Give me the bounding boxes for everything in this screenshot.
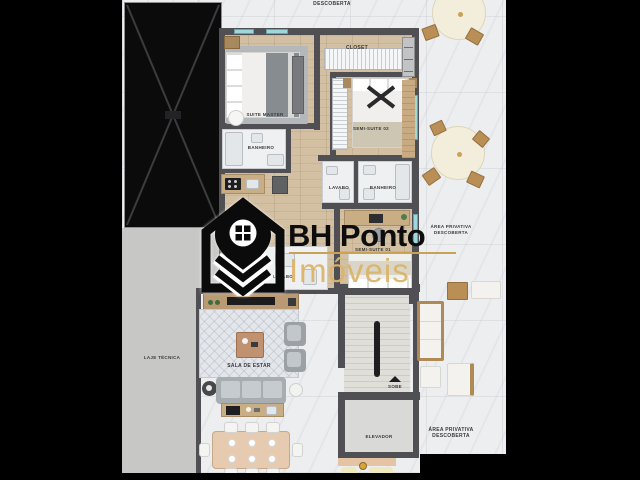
wall-segment: [338, 392, 420, 400]
nightstand: [343, 78, 351, 88]
descoberta-top-label: DESCOBERTA: [305, 1, 359, 7]
decor-item: [251, 342, 258, 347]
wardrobe: [292, 56, 304, 114]
vent-line: [404, 71, 413, 72]
elevador-label: ELEVADOR: [348, 434, 410, 440]
stair-rail: [374, 321, 380, 377]
lavabo-label: LAVABO: [326, 185, 352, 191]
brand-subtitle: Imóveis: [289, 254, 410, 287]
kitchen-sink: [246, 179, 259, 189]
plate: [228, 439, 236, 447]
plate: [248, 439, 256, 447]
burner: [234, 185, 237, 188]
wall-segment: [286, 129, 291, 173]
ceiling-fan-icon: [366, 85, 396, 109]
coffee-table: [236, 332, 264, 358]
sink: [266, 406, 277, 415]
plate: [268, 439, 276, 447]
plate: [228, 455, 236, 463]
table-center: [457, 152, 462, 157]
armchair: [284, 322, 306, 346]
outdoor-armchair: [447, 363, 474, 396]
vent-line: [404, 59, 413, 60]
side-table: [289, 383, 303, 397]
table-center: [458, 12, 463, 17]
kitchen-island: [221, 403, 284, 417]
kitchen-counter: [221, 174, 265, 194]
closet-shelving: [324, 48, 414, 70]
window: [234, 29, 254, 34]
sofa-cushion: [242, 381, 261, 398]
nightstand: [224, 36, 240, 49]
closet-label: CLOSET: [342, 45, 372, 51]
background-mask: [506, 0, 640, 480]
bathroom-vanity: [267, 154, 284, 166]
counter: [338, 458, 396, 466]
laje-tecnica-area: [122, 228, 201, 473]
bh-ponto-logo-icon: [197, 194, 289, 296]
toilet: [251, 133, 263, 143]
cushion-seam: [420, 339, 441, 340]
dining-chair: [245, 422, 259, 433]
laje-tecnica-label: LAJE TÉCNICA: [126, 355, 198, 361]
background-mask: [0, 0, 122, 480]
armchair-cushion: [287, 325, 301, 341]
dining-chair: [266, 422, 280, 433]
sink: [326, 166, 338, 175]
dining-chair: [199, 443, 210, 457]
outdoor-pouf: [471, 281, 501, 299]
suite-bathroom-label: BANHEIRO: [244, 145, 278, 151]
suite-master-bed: [226, 52, 300, 118]
round-side-rug: [228, 110, 244, 126]
decor-item: [246, 407, 251, 412]
area-privativa-line: ÁREA PRIVATIVA: [428, 427, 473, 433]
sofa: [216, 377, 286, 404]
bathtub: [225, 132, 243, 166]
ac-condenser-units: [402, 37, 415, 77]
side-table: [202, 381, 217, 396]
gold-fixture: [359, 462, 367, 470]
sala-de-estar-label: SALA DE ESTAR: [224, 363, 274, 369]
plate: [268, 455, 276, 463]
armchair-cushion: [287, 352, 301, 367]
area-privativa-bottom-label: ÁREA PRIVATIVA DESCOBERTA: [422, 427, 480, 440]
decor-item: [242, 338, 248, 344]
window: [266, 29, 288, 34]
dining-table: [212, 431, 290, 469]
vent-line: [404, 47, 413, 48]
cooktop: [225, 178, 241, 190]
decor-item: [288, 298, 296, 306]
dining-chair: [224, 422, 238, 433]
burner: [228, 185, 231, 188]
suite-master-label: SUITE MASTER: [243, 112, 287, 118]
bed-pillows: [227, 53, 242, 117]
sobe-arrow-icon: [389, 376, 401, 382]
burner: [234, 180, 237, 183]
background-mask: [420, 454, 640, 480]
outdoor-pouf: [420, 366, 441, 388]
semi-suite-02-bed: [352, 78, 408, 148]
floor-plan-image: LAJE TÉCNICA SUITE MASTER CLOSET: [0, 0, 640, 480]
plate: [248, 455, 256, 463]
decor-item: [254, 408, 260, 412]
wall-segment: [338, 398, 345, 458]
armchair: [284, 349, 306, 372]
bh-ponto-watermark: BH Ponto Imóveis: [197, 192, 467, 292]
dining-chair: [292, 443, 303, 457]
wall-segment: [338, 288, 345, 368]
sink: [363, 165, 376, 175]
brand-name: BH Ponto: [288, 220, 425, 251]
burner: [228, 180, 231, 183]
plant: [208, 300, 213, 305]
decor-item: [206, 385, 212, 391]
sobe-label: SOBE: [382, 384, 408, 390]
plant: [215, 300, 220, 305]
wall-segment: [314, 32, 320, 130]
bathroom-2-label: BANHEIRO: [366, 185, 400, 191]
semi-suite-02-label: SEMI-SUITE 02: [350, 126, 392, 132]
closet-shelving: [332, 78, 348, 150]
outdoor-sofa: [417, 301, 444, 361]
sofa-cushion: [263, 381, 282, 398]
elevator-cab: [344, 400, 414, 454]
wood-deck-strip: [402, 80, 415, 158]
descoberta-line: DESCOBERTA: [432, 433, 470, 439]
cushion-seam: [420, 321, 441, 322]
tv: [227, 297, 275, 305]
sofa-cushion: [221, 381, 240, 398]
cooktop: [226, 406, 240, 415]
